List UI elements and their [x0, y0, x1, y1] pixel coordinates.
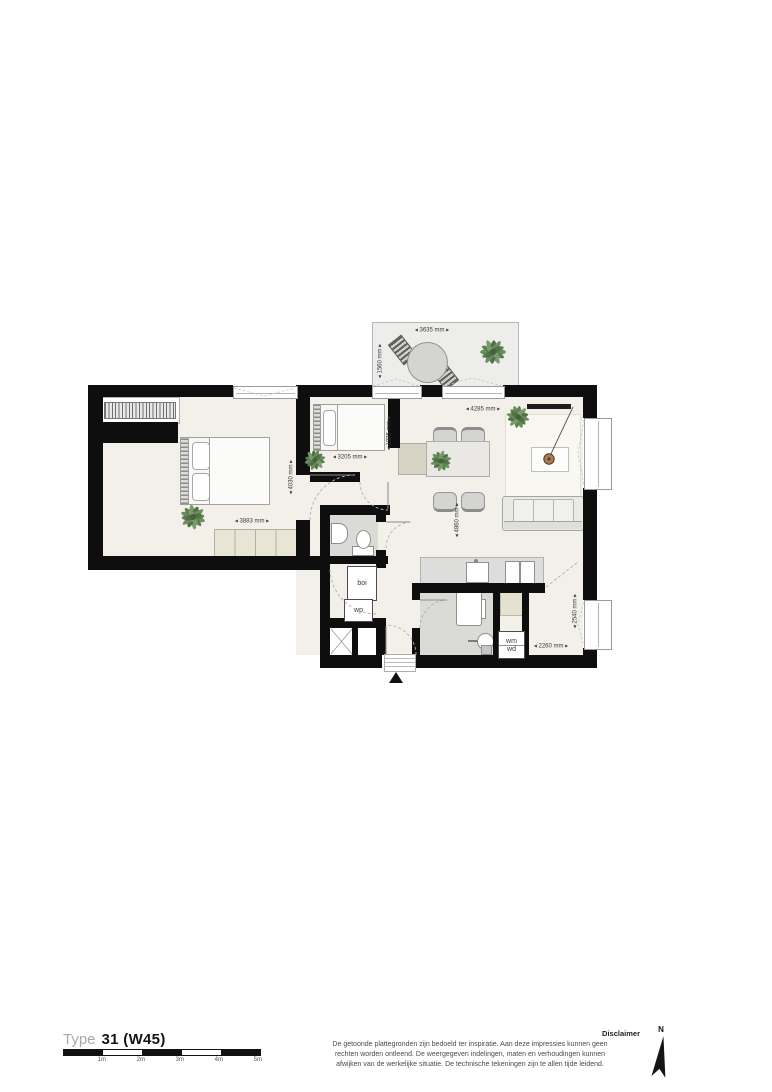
window-glass-line: [598, 603, 599, 647]
hall-window: [584, 600, 612, 650]
wall: [100, 422, 178, 443]
dryer-label: wd: [499, 646, 524, 653]
dim-balcony-depth: ◂ 1560 mm ▸: [377, 344, 384, 378]
scale-label: 4m: [201, 1057, 223, 1063]
shower-screen: [481, 599, 486, 619]
balcony-door: [372, 386, 422, 399]
bed-headboard: [314, 405, 321, 450]
scale-bar: [63, 1049, 261, 1056]
dim-bedroom2-width: ◂ 3205 mm ▸: [333, 454, 367, 461]
wall: [296, 397, 310, 475]
scale-label: 3m: [162, 1057, 184, 1063]
floorplan-page: wm wd boi wp: [0, 0, 772, 1092]
single-bed: [313, 404, 385, 451]
compass: N: [648, 1025, 674, 1086]
bed-pillow: [192, 473, 210, 501]
boiler-label: boi: [357, 580, 366, 587]
entrance-threshold: [384, 654, 416, 672]
entrance-marker-icon: [389, 672, 403, 683]
plan-type-prefix: Type: [63, 1031, 96, 1048]
bed-pillow: [192, 442, 210, 470]
dim-hall-depth: ◂ 2540 mm ▸: [572, 594, 579, 628]
wall: [376, 618, 386, 655]
disclaimer-title: Disclaimer: [300, 1029, 640, 1038]
utility-shelf: [500, 591, 524, 616]
floor-drain: [481, 645, 492, 655]
wall: [88, 556, 320, 570]
sofa-cushion: [513, 499, 534, 523]
shower-tray: [456, 590, 482, 626]
scale-label: 5m: [240, 1057, 262, 1063]
tv: [527, 404, 571, 409]
wall: [583, 648, 597, 668]
wall: [320, 505, 330, 668]
storage-closet: [358, 628, 376, 655]
heat-pump-label: wp: [354, 607, 363, 614]
north-arrow-icon: [650, 1035, 672, 1081]
balcony-door: [442, 386, 505, 399]
plan-type-code: 31 (W45): [102, 1031, 166, 1048]
floor-plan: wm wd boi wp: [0, 0, 772, 1092]
wc-basin: [331, 523, 348, 544]
wall: [88, 385, 233, 397]
bed-headboard: [181, 438, 189, 504]
coffee-table: [531, 447, 569, 472]
washer-dryer-unit: wm wd: [498, 631, 525, 659]
north-label: N: [648, 1025, 674, 1034]
bed-duvet: [337, 404, 385, 451]
kitchen-faucet: [474, 559, 478, 563]
heat-pump-unit: wp: [344, 599, 373, 622]
disclaimer-text: afwijken van de werkelijke situatie. De …: [300, 1060, 640, 1070]
wall: [420, 385, 442, 397]
wall: [352, 628, 358, 655]
wall: [320, 556, 388, 564]
disclaimer: Disclaimer De getoonde plattegronden zij…: [300, 1029, 640, 1070]
dining-table: [426, 441, 490, 477]
radiator: [104, 402, 176, 419]
toilet-bowl: [356, 530, 371, 549]
wall: [296, 385, 372, 397]
dim-living-depth: ◂ 4860 mm ▸: [454, 503, 461, 537]
cooktop: [505, 561, 520, 584]
wall: [296, 520, 310, 556]
wall: [310, 472, 360, 482]
kitchen-sink: [466, 562, 489, 583]
wall: [583, 385, 597, 418]
meter-closet: [330, 628, 353, 655]
living-window: [584, 418, 612, 490]
bed-pillow: [323, 410, 336, 446]
washer-label: wm: [499, 638, 524, 646]
dim-balcony-width: ◂ 3635 mm ▸: [415, 327, 449, 334]
dim-bedroom2-depth: ◂ 1835 mm ▸: [386, 416, 393, 450]
double-bed: [180, 437, 270, 505]
wall: [376, 505, 386, 522]
dining-chair: [461, 492, 485, 512]
sofa-cushion: [553, 499, 574, 523]
sofa: [502, 496, 584, 531]
sofa-cushion: [533, 499, 554, 523]
window-glass-line: [598, 421, 599, 487]
wall: [412, 583, 420, 600]
wall: [320, 655, 382, 668]
window-glass-line: [375, 393, 419, 394]
wall: [88, 385, 103, 567]
dim-bedroom1-width: ◂ 3883 mm ▸: [235, 518, 269, 525]
wardrobe: [214, 529, 298, 557]
bed-duvet: [209, 437, 270, 505]
tall-cabinet: [398, 443, 427, 475]
wall: [412, 628, 420, 655]
bedroom-window: [233, 386, 298, 399]
scale-label: 1m: [84, 1057, 106, 1063]
boiler-unit: boi: [347, 566, 377, 601]
disclaimer-text: rechten worden ontleend. De weergegeven …: [300, 1050, 640, 1060]
dim-hall-width: ◂ 2260 mm ▸: [534, 643, 568, 650]
disclaimer-text: De getoonde plattegronden zijn bedoeld t…: [300, 1040, 640, 1050]
cooktop: [520, 561, 535, 584]
scale-label: 2m: [123, 1057, 145, 1063]
bedroom1-floor: [103, 443, 178, 556]
basin-spout: [468, 640, 478, 642]
plan-title: Type 31 (W45): [63, 1031, 166, 1048]
window-glass-line: [445, 393, 502, 394]
dim-bedroom1-depth: ◂ 4030 mm ▸: [288, 460, 295, 494]
sofa-back: [504, 521, 582, 529]
dim-living-width: ◂ 4285 mm ▸: [466, 406, 500, 413]
wall: [583, 488, 597, 600]
balcony-table: [407, 342, 448, 383]
window-glass-line: [236, 393, 295, 394]
